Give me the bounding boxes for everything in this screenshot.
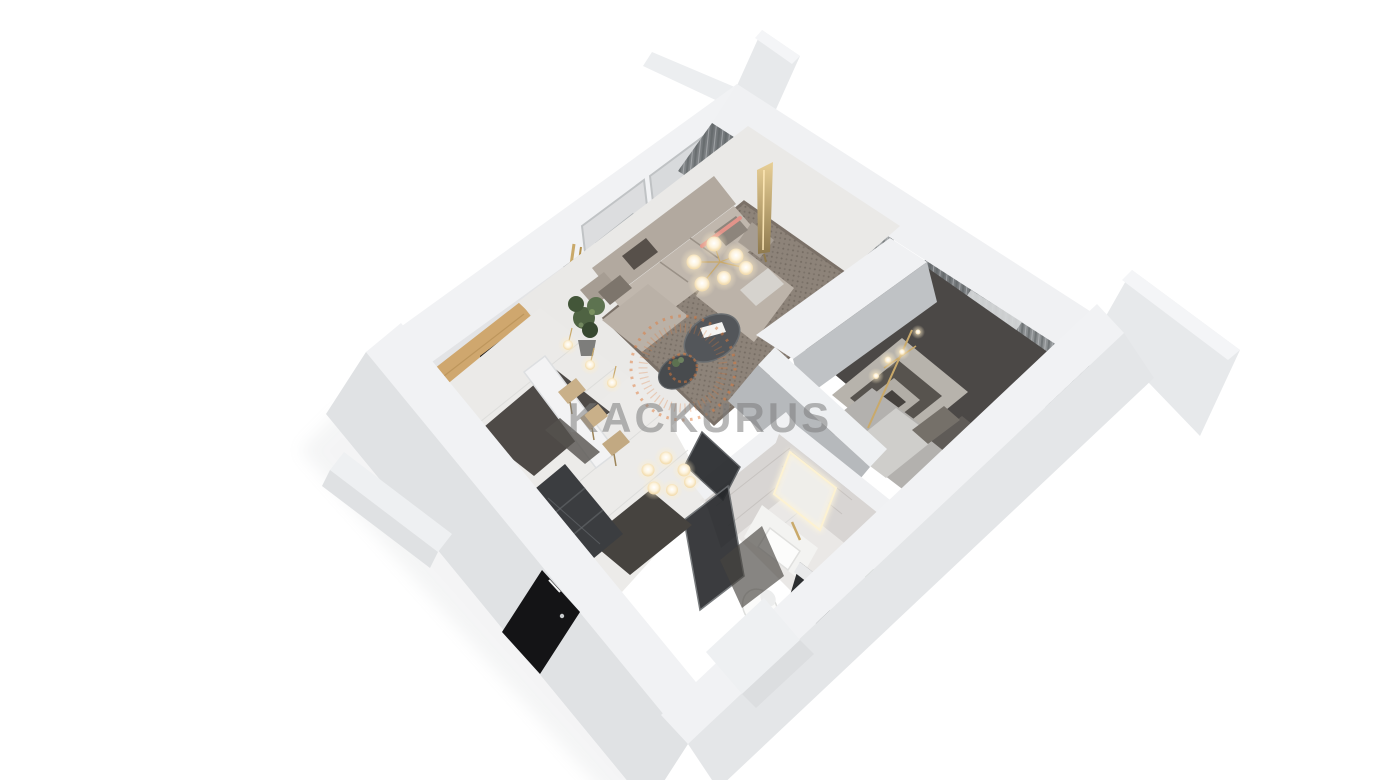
plant-pot	[578, 340, 596, 356]
floorplan-render-canvas: KACKURUS	[0, 0, 1400, 780]
door-handle	[560, 614, 564, 618]
watermark-brand-text: KACKURUS	[568, 394, 832, 441]
table-plant-leaf	[678, 357, 684, 363]
apartment-3d-floorplan: KACKURUS	[0, 0, 1400, 780]
